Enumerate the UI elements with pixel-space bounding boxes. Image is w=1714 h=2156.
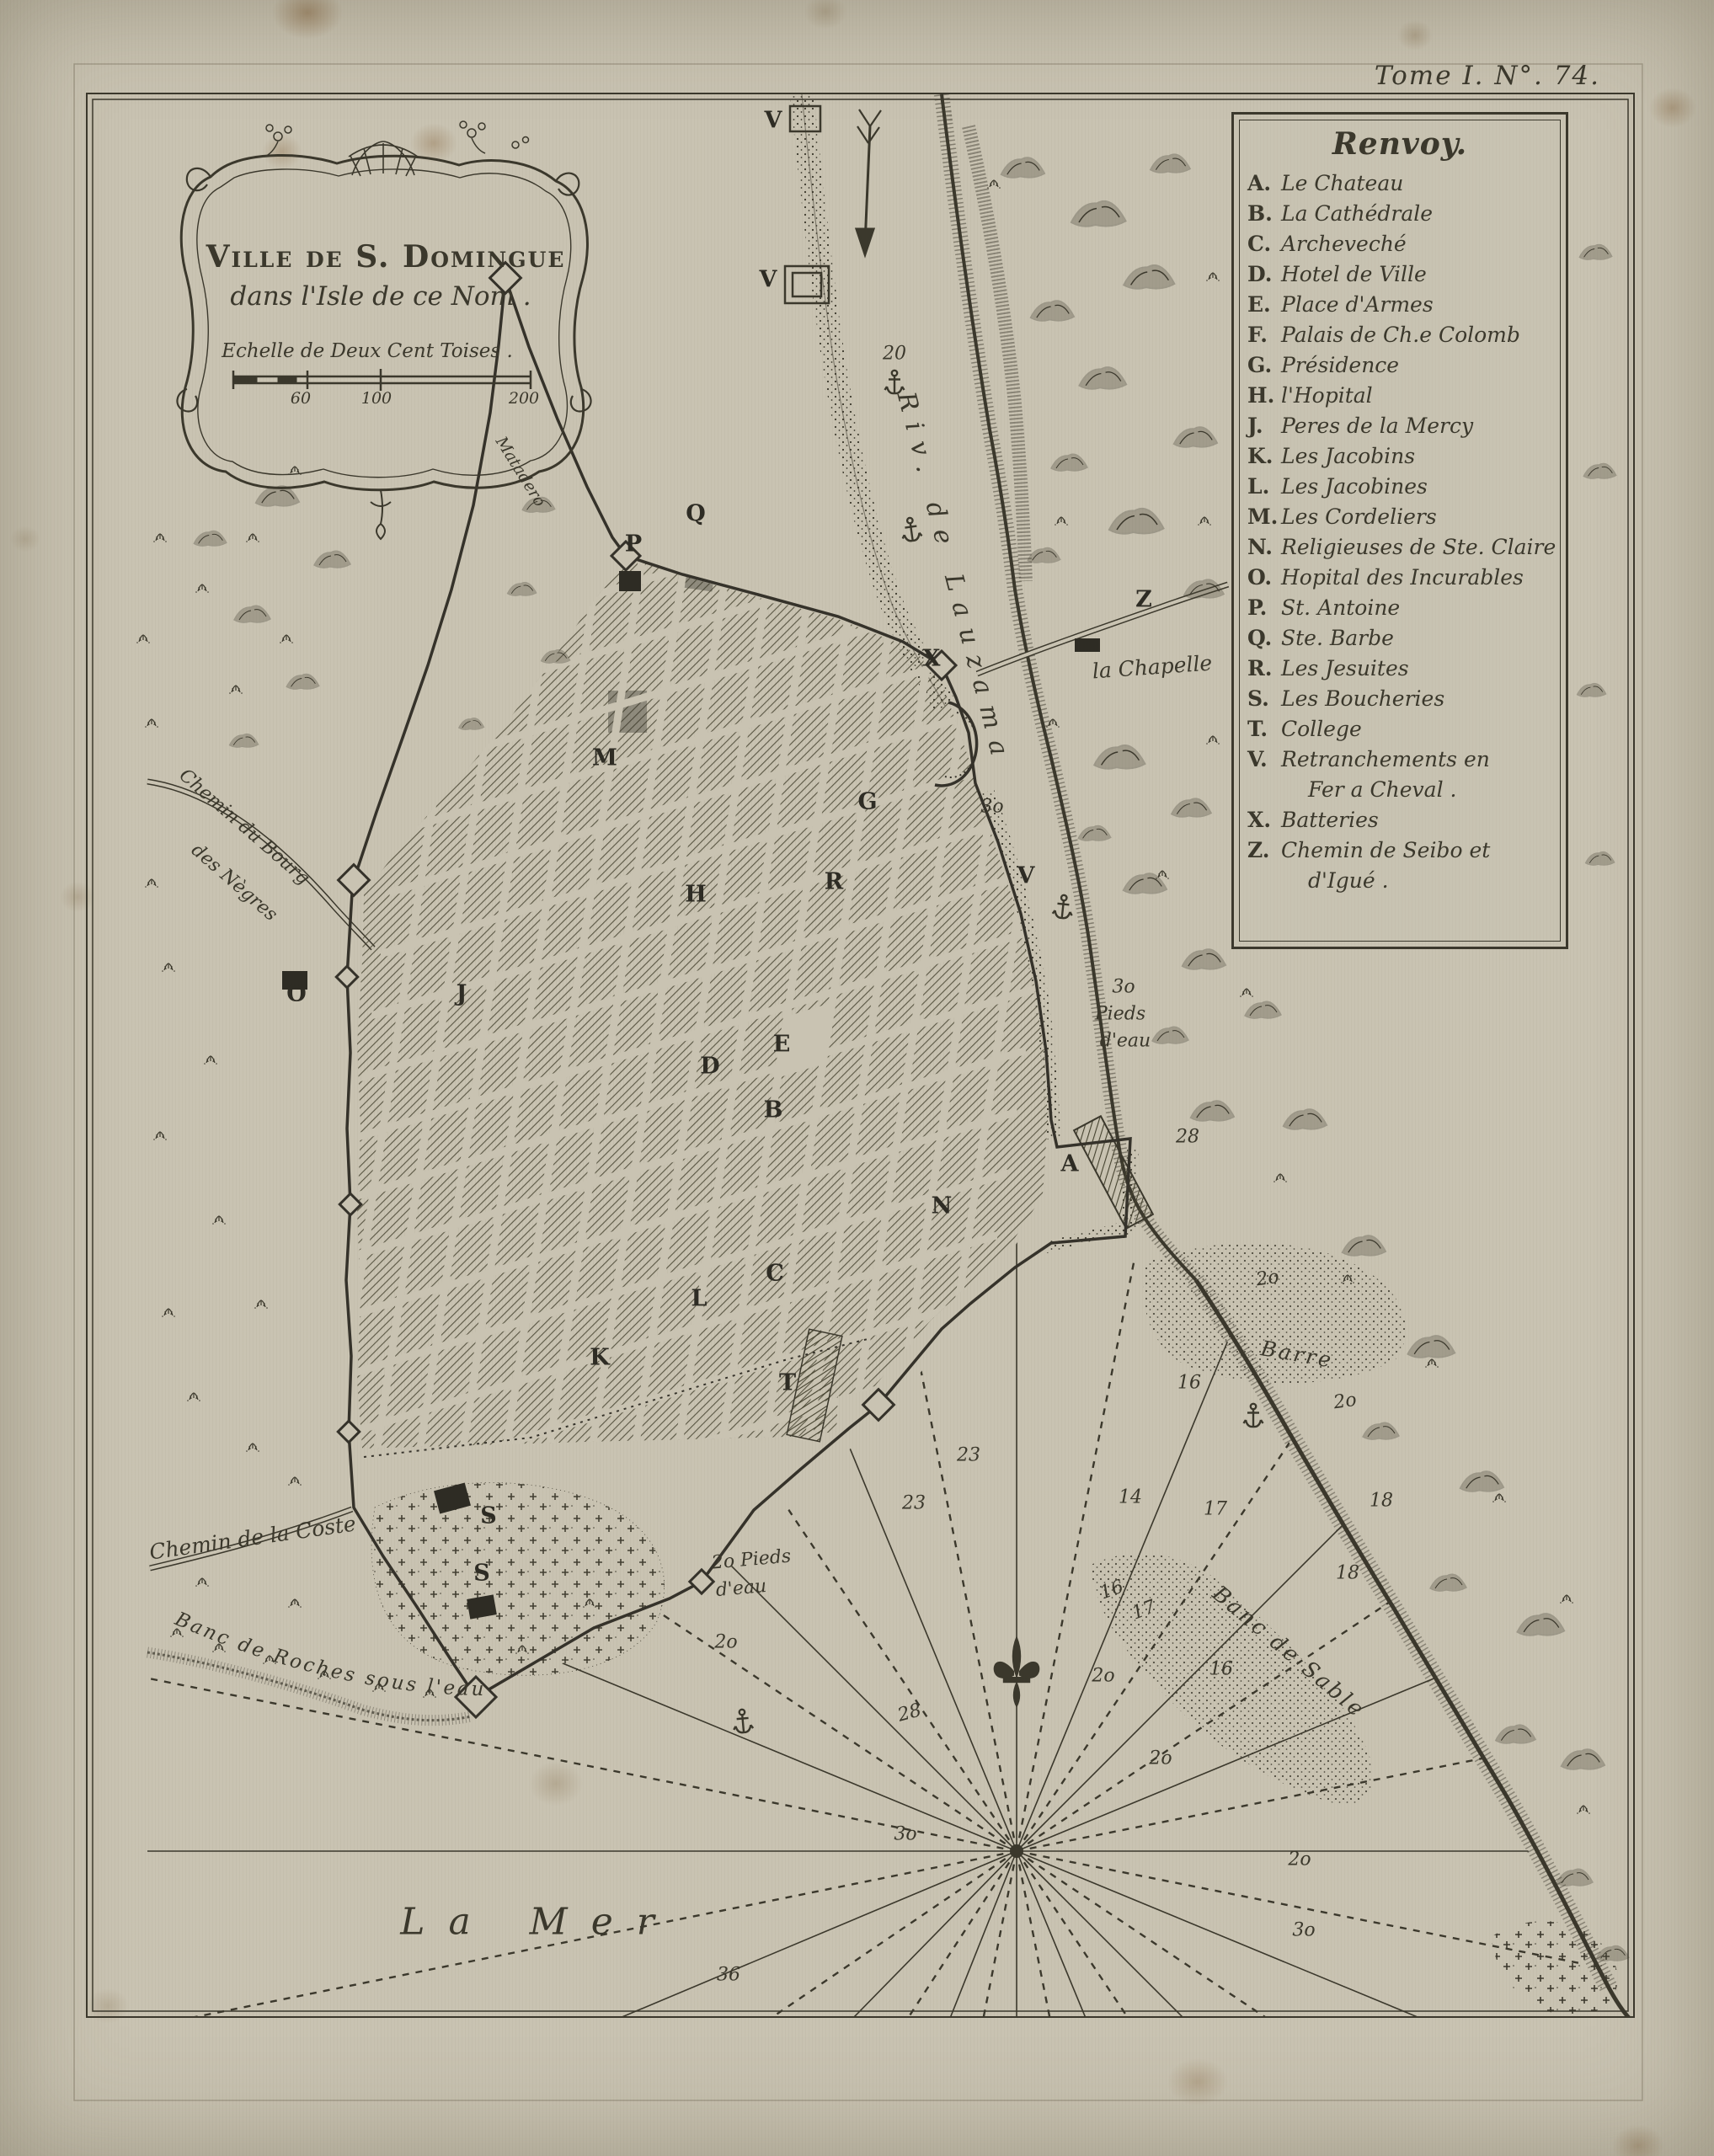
legend-label: Ste. Barbe [1281, 623, 1394, 654]
legend-renvoy: Renvoy. A.Le Chateau B.La Cathédrale C.A… [1231, 112, 1568, 949]
legend-key: N. [1247, 532, 1281, 563]
legend-entry-continuation: Fer a Cheval . [1234, 775, 1566, 805]
legend-entry: K.Les Jacobins [1234, 441, 1566, 472]
pieds-deau-30: 3o [1112, 977, 1135, 998]
pieds-deau-30: Pieds [1095, 1004, 1145, 1025]
legend-key: J. [1247, 411, 1281, 441]
legend-label: Les Jesuites [1281, 654, 1409, 684]
banc-de-sable-label: Banc de Sable [1207, 1582, 1370, 1724]
map-letter: E [773, 1032, 791, 1058]
scale-tick-60: 60 [291, 389, 311, 408]
legend-label: Le Chateau [1281, 168, 1403, 199]
legend-label: La Cathédrale [1281, 199, 1433, 229]
map-letter: X [923, 646, 941, 672]
depth-sounding: 23 [957, 1445, 980, 1466]
pieds-deau-20: d'eau [715, 1576, 767, 1601]
map-letter: S [473, 1561, 490, 1587]
legend-label: Retranchements en [1281, 744, 1490, 775]
legend-entry: Z.Chemin de Seibo et [1234, 835, 1566, 866]
depth-sounding: 2o [1288, 1849, 1311, 1870]
legend-label: Présidence [1281, 350, 1399, 381]
depth-sounding: 17 [1204, 1499, 1227, 1520]
map-letter: Q [686, 501, 706, 527]
legend-key: P. [1247, 593, 1281, 623]
pieds-deau-20: 2o Pieds [711, 1545, 792, 1573]
chapelle-label: la Chapelle [1092, 651, 1213, 684]
legend-label: Hotel de Ville [1281, 259, 1427, 290]
map-title: Ville de S. Domingue [206, 239, 566, 275]
road-bourg-label-1: Chemin du Bourg [175, 765, 314, 889]
legend-key: B. [1247, 199, 1281, 229]
legend-key: D. [1247, 259, 1281, 290]
legend-key: C. [1247, 229, 1281, 259]
map-letter: A [1061, 1151, 1079, 1177]
depth-sounding: 2o [1092, 1666, 1114, 1687]
legend-entry: O.Hopital des Incurables [1234, 563, 1566, 593]
legend-entry: E.Place d'Armes [1234, 290, 1566, 320]
legend-entry: V.Retranchements en [1234, 744, 1566, 775]
legend-entry: L.Les Jacobines [1234, 472, 1566, 502]
legend-label: Archeveché [1281, 229, 1407, 259]
plate-number: Tome I. N°. 74. [1247, 61, 1600, 91]
legend-entry-continuation: d'Igué . [1234, 866, 1566, 896]
map-letter: P [625, 531, 642, 558]
scale-tick-100: 100 [361, 389, 392, 408]
map-letter: L [691, 1286, 707, 1312]
legend-entry: M.Les Cordeliers [1234, 502, 1566, 532]
legend-entry: F.Palais de Ch.e Colomb [1234, 320, 1566, 350]
scale-caption: Echelle de Deux Cent Toises . [222, 340, 513, 362]
depth-sounding: 3o [894, 1824, 916, 1845]
map-letter: D [700, 1054, 719, 1080]
depth-sounding: 18 [1336, 1563, 1359, 1584]
legend-label: Les Boucheries [1281, 684, 1444, 714]
legend-label: Batteries [1281, 805, 1379, 835]
legend-label: Les Cordeliers [1281, 502, 1437, 532]
depth-sounding: 2o [1255, 1267, 1280, 1291]
depth-sounding: 14 [1119, 1487, 1142, 1508]
map-letter: C [766, 1261, 784, 1287]
legend-key: M. [1247, 502, 1281, 532]
legend-label: Palais de Ch.e Colomb [1281, 320, 1520, 350]
legend-entry: B.La Cathédrale [1234, 199, 1566, 229]
depth-sounding: 2o [714, 1632, 737, 1653]
legend-label: Peres de la Mercy [1281, 411, 1473, 441]
map-letter: R [825, 869, 843, 895]
legend-key: Q. [1247, 623, 1281, 654]
label-overlay: Tome I. N°. 74. Ville de S. Domingue dan… [0, 0, 1714, 2156]
legend-entry: J.Peres de la Mercy [1234, 411, 1566, 441]
pieds-deau-30: d'eau [1100, 1031, 1151, 1052]
map-letter: H [685, 882, 707, 908]
legend-entry: S.Les Boucheries [1234, 684, 1566, 714]
legend-entry: Q.Ste. Barbe [1234, 623, 1566, 654]
legend-entry: T.College [1234, 714, 1566, 744]
road-coste-label: Chemin de la Coste [148, 1511, 358, 1564]
depth-sounding: 3o [1292, 1920, 1315, 1941]
legend-key: A. [1247, 168, 1281, 199]
legend-key: T. [1247, 714, 1281, 744]
depth-sounding: 36 [717, 1965, 740, 1986]
map-letter: T [779, 1370, 796, 1396]
legend-label: College [1281, 714, 1362, 744]
map-letter: G [857, 789, 877, 815]
map-subtitle: dans l'Isle de ce Nom . [230, 281, 531, 312]
map-letter: J [457, 981, 467, 1007]
legend-key: Z. [1247, 835, 1281, 866]
scale-tick-200: 200 [509, 389, 539, 408]
depth-sounding: 28 [895, 1700, 924, 1726]
map-letter: Z [1135, 587, 1152, 613]
map-letter: N [932, 1193, 953, 1219]
legend-key: V. [1247, 744, 1281, 775]
legend-key: O. [1247, 563, 1281, 593]
legend-entry: C.Archeveché [1234, 229, 1566, 259]
map-letter: V [1017, 863, 1035, 889]
legend-label: Chemin de Seibo et [1281, 835, 1490, 866]
map-letter: V [760, 267, 777, 293]
la-mer-label: La Mer [400, 1901, 678, 1944]
barre-label: Barre [1259, 1336, 1336, 1373]
engraved-map-page: Riv. de Lauzama Banc de Roches sous l'ea… [0, 0, 1714, 2156]
legend-label: Religieuses de Ste. Claire [1281, 532, 1556, 563]
matadero-label: Matadero [492, 433, 549, 510]
map-letter: S [480, 1503, 497, 1529]
depth-sounding: 20 [883, 344, 906, 365]
legend-title: Renvoy. [1234, 126, 1566, 162]
map-letter: M [592, 745, 617, 771]
legend-entry: P.St. Antoine [1234, 593, 1566, 623]
legend-entry: N.Religieuses de Ste. Claire [1234, 532, 1566, 563]
legend-key: R. [1247, 654, 1281, 684]
map-letter: V [765, 108, 782, 134]
legend-key: K. [1247, 441, 1281, 472]
legend-key: H. [1247, 381, 1281, 411]
legend-key: E. [1247, 290, 1281, 320]
legend-entry: H.l'Hopital [1234, 381, 1566, 411]
legend-entry: X.Batteries [1234, 805, 1566, 835]
legend-key: S. [1247, 684, 1281, 714]
legend-key: L. [1247, 472, 1281, 502]
depth-sounding: 2o [1149, 1748, 1172, 1769]
map-letter: K [590, 1345, 609, 1371]
depth-sounding: 16 [1097, 1576, 1127, 1604]
legend-entry: G.Présidence [1234, 350, 1566, 381]
legend-label: Hopital des Incurables [1281, 563, 1524, 593]
legend-key: X. [1247, 805, 1281, 835]
legend-label: Place d'Armes [1281, 290, 1434, 320]
depth-sounding: 2o [1332, 1390, 1358, 1414]
depth-sounding: 18 [1370, 1491, 1393, 1512]
legend-key: G. [1247, 350, 1281, 381]
depth-sounding: 16 [1209, 1659, 1233, 1680]
depth-sounding: 17 [1129, 1596, 1159, 1624]
map-letter: O [286, 981, 307, 1007]
legend-label: l'Hopital [1281, 381, 1373, 411]
depth-sounding: 16 [1177, 1373, 1201, 1394]
legend-entry: D.Hotel de Ville [1234, 259, 1566, 290]
depth-sounding: 28 [1176, 1127, 1199, 1148]
legend-label: Les Jacobins [1281, 441, 1415, 472]
legend-label: Les Jacobines [1281, 472, 1428, 502]
legend-key: F. [1247, 320, 1281, 350]
legend-label: St. Antoine [1281, 593, 1400, 623]
map-letter: B [764, 1097, 783, 1123]
depth-sounding: 3o [980, 797, 1003, 818]
legend-entry: A.Le Chateau [1234, 168, 1566, 199]
legend-entry: R.Les Jesuites [1234, 654, 1566, 684]
depth-sounding: 23 [902, 1493, 926, 1514]
